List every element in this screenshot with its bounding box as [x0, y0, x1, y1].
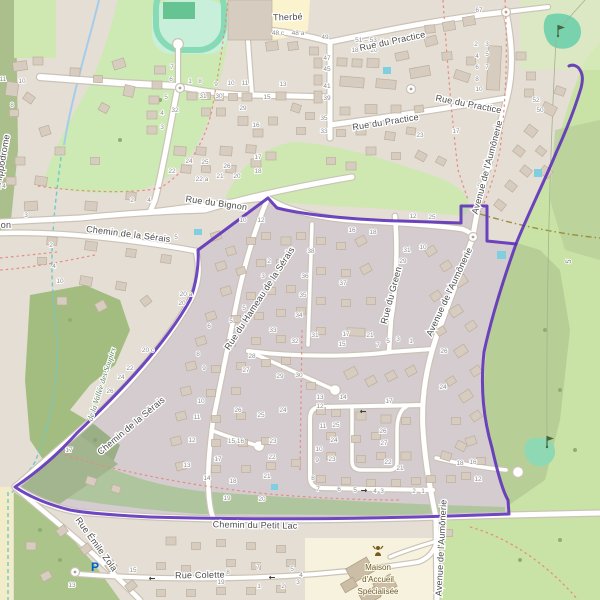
building — [277, 336, 286, 343]
building — [306, 113, 315, 120]
social-facility-name: Spécialisée — [358, 587, 399, 596]
map-canvas[interactable]: 1110865432410765431891011131531302916324… — [0, 0, 600, 600]
house-number: 18 — [369, 229, 377, 236]
building — [91, 158, 100, 165]
house-number: 23 — [416, 132, 424, 139]
house-number: 2 — [49, 242, 53, 249]
building — [462, 473, 471, 480]
house-number: 8 — [10, 102, 14, 109]
building — [247, 238, 256, 245]
house-number: 4 — [373, 488, 377, 495]
house-number: 15 16 — [228, 438, 245, 445]
building — [317, 238, 326, 245]
building — [174, 146, 187, 156]
house-number: 13 — [183, 462, 191, 469]
house-number: 4 — [147, 197, 151, 204]
house-number: 25 — [428, 214, 436, 221]
building — [246, 145, 257, 154]
building — [123, 85, 135, 98]
building — [202, 108, 211, 116]
oneway-right-icon: → — [361, 486, 368, 495]
house-number: 10 — [56, 278, 64, 285]
building — [34, 176, 47, 187]
house-number: 8 — [196, 351, 200, 358]
building — [10, 110, 19, 117]
house-number: 17 — [254, 154, 262, 161]
house-number: 33 — [320, 128, 328, 135]
building — [525, 89, 534, 97]
svg-text:P: P — [91, 560, 99, 574]
building — [314, 91, 322, 103]
house-number: 26 — [223, 163, 231, 170]
building — [277, 546, 286, 553]
house-number: 11 — [242, 80, 249, 87]
house-number: 12 — [257, 217, 265, 224]
house-number: 10 — [419, 244, 427, 251]
building — [212, 440, 221, 447]
building — [238, 117, 248, 126]
building — [442, 52, 453, 61]
house-number: 22 — [268, 454, 276, 461]
building — [262, 233, 271, 240]
house-number: 26 — [106, 388, 114, 395]
building — [366, 147, 376, 155]
house-number: 2 — [412, 488, 416, 495]
building — [55, 147, 65, 155]
house-number: 10 — [227, 80, 235, 87]
house-number: 19 — [217, 579, 225, 586]
building — [342, 478, 351, 485]
building — [352, 436, 361, 443]
house-number: 5 — [164, 94, 168, 101]
building — [337, 130, 346, 137]
building — [307, 383, 316, 390]
building — [166, 537, 176, 545]
house-number: 26 — [379, 428, 387, 435]
house-number: 3 — [380, 488, 384, 495]
house-number: 15 — [129, 567, 137, 574]
building — [201, 165, 211, 173]
svg-text:←: ← — [360, 407, 367, 416]
building — [467, 57, 476, 65]
house-number: 8 — [475, 76, 479, 83]
house-number: 10 — [239, 217, 247, 224]
building — [57, 297, 67, 305]
house-number: 48 a — [292, 30, 305, 37]
house-number: 12 — [409, 213, 417, 220]
house-number: 21 — [396, 465, 404, 472]
house-number: 21 — [263, 473, 271, 480]
house-number: 18 — [456, 460, 464, 467]
house-number: 13 — [68, 582, 76, 589]
house-number: 22 — [126, 365, 134, 372]
house-number: 14 — [203, 475, 211, 482]
house-number: 7 — [256, 564, 260, 571]
building — [26, 542, 36, 550]
house-number: 25 — [332, 422, 340, 429]
house-number: 24 — [117, 374, 125, 381]
building — [269, 117, 278, 125]
house-number: 26 — [440, 348, 448, 355]
street-label: Rue Colette — [175, 570, 225, 581]
building — [217, 108, 226, 116]
building — [227, 560, 236, 567]
house-number: 32 — [171, 107, 179, 114]
house-number: 2 — [130, 197, 134, 204]
house-number: 4 — [475, 53, 479, 60]
house-number: 12 — [474, 476, 482, 483]
house-number: 29 — [276, 373, 284, 380]
house-number: 13 — [279, 81, 287, 88]
building — [367, 480, 376, 487]
building — [33, 57, 43, 65]
house-number: 8 — [198, 78, 202, 85]
building — [192, 543, 201, 550]
house-number: 17 — [65, 447, 73, 454]
house-number: 24 — [279, 407, 287, 414]
building — [412, 478, 421, 485]
building — [157, 590, 166, 597]
building — [367, 58, 379, 68]
building — [84, 241, 97, 252]
house-number: 6 — [337, 486, 341, 493]
building — [257, 260, 266, 267]
house-number: 22 — [168, 168, 176, 175]
building — [317, 476, 326, 483]
house-number: 9 — [214, 81, 218, 88]
building — [391, 105, 401, 113]
house-number: 11 — [0, 76, 7, 83]
house-number: 8 — [311, 475, 315, 482]
building — [247, 543, 256, 550]
house-number: 33 — [269, 327, 277, 334]
house-number: 4 — [160, 110, 164, 117]
building — [266, 152, 276, 160]
building — [242, 466, 251, 473]
house-number: 7 — [376, 342, 380, 349]
building — [392, 480, 401, 487]
building — [207, 390, 216, 397]
house-number: 47 — [323, 55, 331, 62]
building — [212, 416, 221, 423]
house-number: 26 — [234, 407, 242, 414]
house-number: 36 — [301, 273, 309, 280]
house-number: 4 — [299, 572, 303, 579]
house-number: 20 a — [180, 291, 193, 298]
oneway-left-icon: ← — [149, 574, 156, 583]
building — [15, 157, 25, 165]
house-number: 16 — [252, 122, 260, 129]
house-number: 5 — [229, 318, 233, 325]
building — [287, 41, 298, 50]
house-number: 29 — [239, 105, 247, 112]
house-number: 3 — [296, 579, 300, 586]
building — [401, 452, 411, 460]
house-number: 25 — [257, 412, 265, 419]
oneway-left-icon: ← — [360, 407, 367, 416]
building — [12, 61, 27, 72]
map-svg: 1110865432410765431891011131531302916324… — [0, 0, 600, 600]
building — [337, 58, 347, 67]
building — [265, 41, 278, 52]
building — [242, 93, 252, 101]
house-number: 24 — [330, 437, 338, 444]
building — [5, 81, 19, 97]
house-number: 21 — [216, 173, 224, 180]
house-number: 20 c — [142, 347, 155, 354]
house-number: 1 — [257, 583, 261, 590]
house-number: 3 — [485, 41, 489, 48]
house-number: 4 — [52, 263, 56, 270]
house-number: 30 — [295, 372, 303, 379]
building — [447, 476, 456, 483]
building — [187, 92, 197, 100]
house-number: 19 — [223, 495, 231, 502]
house-number: 18 — [351, 47, 359, 54]
building — [314, 75, 322, 85]
building — [367, 298, 376, 305]
house-number: 11 — [194, 414, 201, 421]
building — [365, 105, 377, 114]
building — [357, 456, 366, 463]
building — [70, 68, 80, 77]
building — [332, 410, 341, 417]
building — [220, 146, 233, 156]
house-number: 22 — [384, 459, 392, 466]
building — [297, 233, 306, 240]
building — [314, 58, 322, 68]
building — [276, 92, 286, 100]
house-number: 15 — [263, 94, 271, 101]
building — [196, 147, 207, 156]
building — [152, 81, 162, 89]
building — [93, 75, 102, 82]
house-number: 30 — [215, 93, 223, 100]
building — [342, 270, 351, 277]
house-number: 18 — [229, 478, 237, 485]
house-number: 20 — [178, 300, 186, 307]
house-number: 27 — [380, 440, 388, 447]
house-number: 41 — [323, 83, 331, 90]
svg-text:←: ← — [269, 573, 276, 582]
house-number: 2 — [474, 41, 478, 48]
house-number: 17 — [452, 128, 460, 135]
building — [147, 126, 157, 134]
house-number: 45 — [323, 66, 331, 73]
house-number: 8 — [226, 569, 230, 576]
building — [381, 415, 391, 423]
building — [425, 25, 436, 34]
building — [352, 59, 362, 68]
house-number: 7 — [316, 486, 320, 493]
house-number: 2 — [267, 258, 271, 265]
house-number: 49 — [321, 34, 329, 41]
house-number: 50 — [536, 107, 544, 114]
building — [516, 52, 526, 60]
building — [281, 237, 291, 245]
building — [292, 460, 301, 467]
building — [247, 588, 256, 595]
building — [232, 388, 241, 395]
house-number: 5 — [290, 566, 294, 573]
house-number: 23 — [269, 438, 277, 445]
building — [253, 129, 263, 137]
house-number: 28 — [248, 353, 256, 360]
social-facility-name: d'Accueil — [362, 575, 394, 584]
street-label: on — [1, 220, 11, 230]
building — [267, 463, 276, 470]
building — [340, 76, 365, 88]
building — [252, 338, 261, 345]
house-number: 7 — [485, 64, 489, 71]
building — [442, 21, 455, 32]
house-number: 3 — [261, 273, 265, 280]
building — [287, 286, 296, 293]
house-number: 17 — [214, 456, 222, 463]
house-number: 24 — [439, 384, 447, 391]
house-number: 37 — [339, 280, 347, 287]
house-number: 5 — [174, 234, 178, 241]
house-number: 10 — [18, 78, 26, 85]
house-number: 34 — [295, 312, 303, 319]
building — [406, 127, 416, 135]
house-number: 1 — [421, 488, 425, 495]
house-number: 18 — [254, 168, 262, 175]
svg-text:←: ← — [149, 574, 156, 583]
house-number: 23 — [328, 456, 336, 463]
building — [181, 165, 192, 174]
house-number: 29 — [399, 258, 407, 265]
house-number: 31 — [403, 247, 411, 254]
house-number: 7 — [170, 64, 174, 71]
street-label: Chemin du Petit Lac — [213, 519, 298, 530]
house-number: 6 — [475, 64, 479, 71]
building — [402, 418, 411, 425]
house-number: 11 — [320, 423, 327, 430]
house-number: 27 — [242, 367, 250, 374]
building — [317, 268, 326, 275]
house-number: 38 — [307, 248, 315, 255]
house-number: 5 — [485, 51, 489, 58]
building — [115, 281, 126, 291]
house-number: 16 — [469, 459, 477, 466]
building — [282, 358, 291, 365]
building — [217, 588, 226, 595]
house-number: 12 — [188, 437, 196, 444]
house-number: 39 — [323, 95, 331, 102]
house-number: 20 — [233, 173, 241, 180]
house-number: 20 — [258, 496, 266, 503]
house-number: 67 — [475, 7, 483, 14]
building — [262, 360, 271, 367]
house-number: 21 — [366, 332, 374, 339]
building — [384, 131, 395, 140]
house-number: 9 — [315, 457, 319, 464]
house-number: 48 c — [272, 30, 285, 37]
building — [346, 162, 356, 170]
street-label: Therbé — [273, 11, 303, 22]
house-number: 10 — [197, 398, 205, 405]
house-number: 16 — [348, 227, 356, 234]
house-number: 32 — [291, 338, 299, 345]
house-number: 12 — [316, 403, 324, 410]
house-number: 24 — [185, 158, 193, 165]
house-number: 2 — [281, 583, 285, 590]
building — [6, 177, 16, 185]
building — [147, 111, 157, 119]
house-number: 52 — [532, 97, 540, 104]
parking-icon: P — [91, 560, 99, 574]
building — [477, 458, 486, 465]
house-number: 5 — [386, 338, 390, 345]
house-number: 10 — [315, 446, 323, 453]
building — [157, 563, 166, 570]
building — [462, 16, 475, 27]
building — [342, 300, 351, 307]
building — [217, 540, 226, 547]
building — [452, 418, 461, 425]
building — [155, 66, 166, 74]
house-number: 14 — [339, 394, 347, 401]
building — [149, 96, 159, 104]
building — [527, 72, 536, 80]
building — [317, 298, 326, 305]
building — [327, 158, 336, 165]
house-number: 31 — [311, 332, 319, 339]
house-number: 3 — [24, 212, 28, 219]
svg-text:→: → — [361, 486, 368, 495]
oneway-left-icon: ← — [269, 573, 276, 582]
building — [337, 243, 346, 250]
house-number: 17 — [385, 398, 393, 405]
building — [255, 313, 264, 320]
house-number: 1 — [188, 78, 192, 85]
house-number: 1 — [409, 338, 413, 345]
building — [392, 153, 401, 160]
building — [85, 201, 98, 211]
house-number: 35 — [320, 115, 328, 122]
building — [277, 310, 286, 317]
building — [125, 248, 136, 257]
building — [310, 47, 319, 55]
house-number: 13 — [316, 394, 324, 401]
building — [24, 201, 38, 211]
building — [376, 79, 397, 90]
building — [297, 128, 306, 135]
house-number: 22 a — [196, 176, 209, 183]
house-number: 15 — [338, 341, 346, 348]
social-facility-name: Maison — [365, 563, 391, 572]
house-number: 3 — [396, 336, 400, 343]
house-number: 6 — [207, 323, 211, 330]
house-number: 31 — [199, 93, 207, 100]
building — [427, 476, 436, 483]
house-number: 10 — [475, 86, 483, 93]
building — [212, 466, 221, 473]
building — [228, 0, 272, 40]
house-number: 3 — [160, 124, 164, 131]
building — [38, 258, 47, 265]
building — [340, 107, 350, 115]
house-number: 6 — [169, 76, 173, 83]
building — [229, 94, 238, 101]
house-number: 25 — [201, 159, 209, 166]
house-number: 9 — [202, 365, 206, 372]
house-number: 5 — [353, 487, 357, 494]
building — [79, 276, 92, 287]
house-number: 17 — [342, 331, 350, 338]
house-number: 35 — [299, 292, 307, 299]
